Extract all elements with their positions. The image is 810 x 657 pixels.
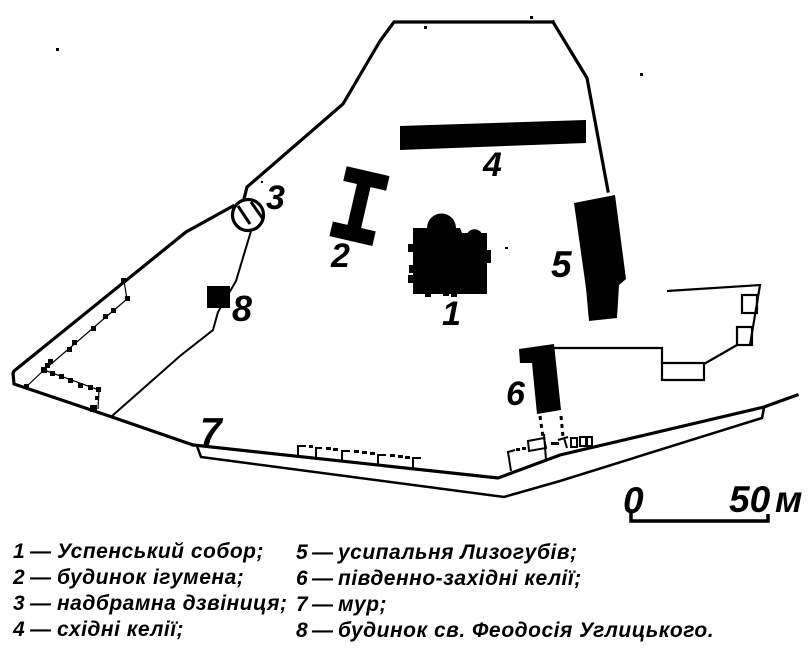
svg-text:8: 8 — [232, 288, 252, 329]
svg-text:м: м — [775, 479, 802, 520]
svg-text:—: — — [311, 541, 334, 564]
svg-text:5: 5 — [296, 541, 308, 564]
svg-text:5: 5 — [551, 244, 573, 285]
svg-text:0: 0 — [623, 480, 644, 521]
svg-text:4: 4 — [482, 146, 502, 184]
svg-text:—: — — [311, 593, 334, 616]
svg-text:6: 6 — [506, 375, 526, 413]
svg-text:Успенський собор;: Успенський собор; — [57, 540, 264, 563]
svg-text:7: 7 — [296, 593, 309, 616]
svg-text:усипальня Лизогубів;: усипальня Лизогубів; — [337, 541, 578, 564]
svg-text:південно-західні келії;: південно-західні келії; — [338, 567, 582, 590]
svg-text:1: 1 — [13, 540, 25, 563]
svg-text:будинок ігумена;: будинок ігумена; — [57, 566, 244, 589]
svg-text:будинок св. Феодосія Углицьког: будинок св. Феодосія Углицького. — [338, 619, 714, 642]
svg-text:—: — — [29, 566, 52, 589]
svg-text:—: — — [29, 592, 52, 615]
svg-text:4: 4 — [12, 618, 25, 641]
svg-text:50: 50 — [729, 479, 771, 520]
svg-text:7: 7 — [200, 411, 224, 454]
svg-text:1: 1 — [442, 295, 461, 333]
svg-text:східні келії;: східні келії; — [57, 618, 184, 641]
svg-text:мур;: мур; — [338, 593, 387, 616]
svg-text:—: — — [311, 619, 334, 642]
svg-text:3: 3 — [266, 179, 285, 217]
svg-text:6: 6 — [296, 567, 308, 590]
svg-text:надбрамна дзвіниця;: надбрамна дзвіниця; — [57, 592, 287, 615]
svg-text:3: 3 — [13, 592, 25, 615]
svg-text:—: — — [29, 618, 52, 641]
svg-text:8: 8 — [296, 619, 308, 642]
svg-text:2: 2 — [330, 237, 350, 275]
svg-text:2: 2 — [12, 566, 25, 589]
svg-text:—: — — [29, 540, 52, 563]
svg-text:—: — — [311, 567, 334, 590]
